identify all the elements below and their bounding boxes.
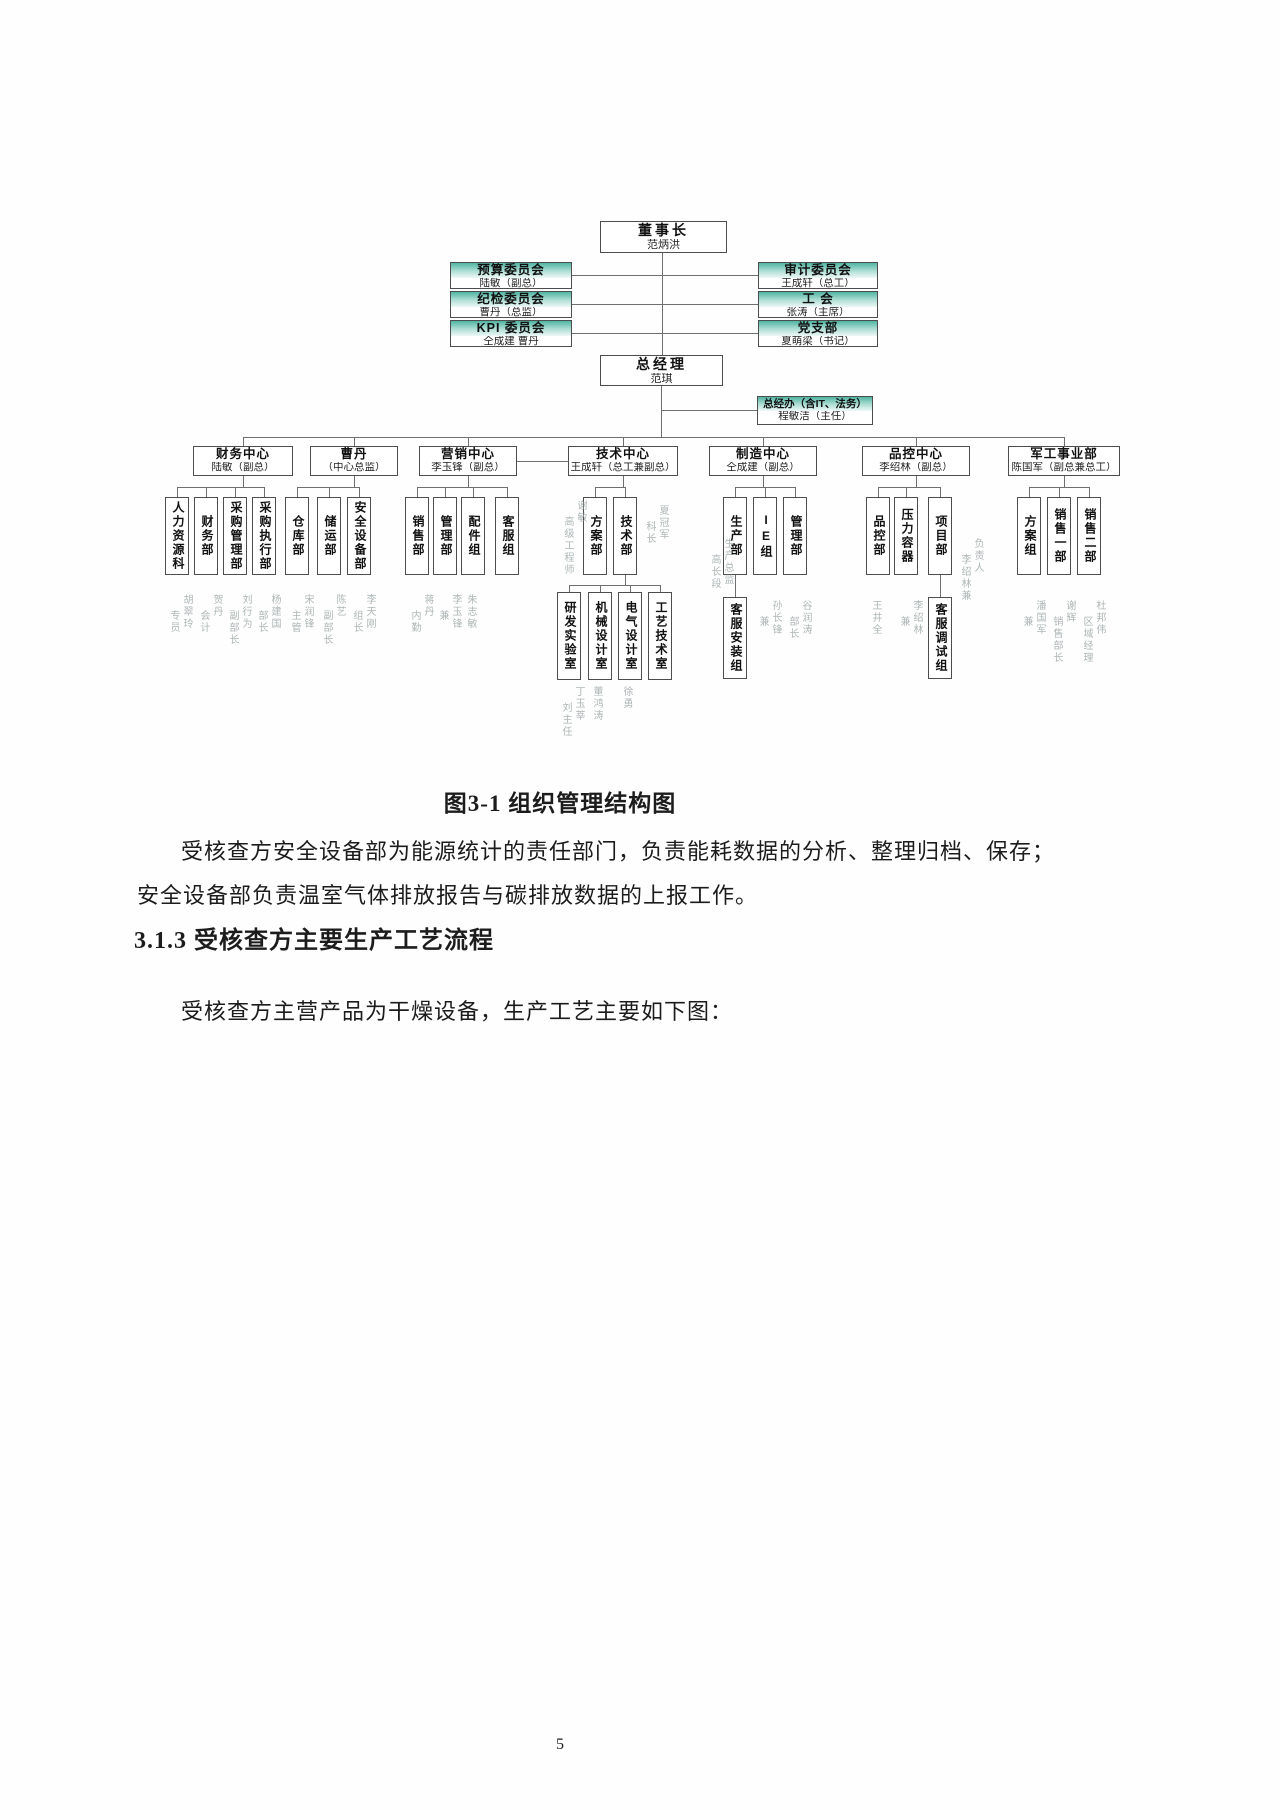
box-title: 审计委员会 — [759, 263, 877, 278]
org-dept-safety-equipment: 安全设备部 — [347, 497, 371, 575]
note-text: 李绍林 — [910, 600, 923, 636]
connector-line — [572, 275, 663, 276]
note-text: 杜邦伟 — [1093, 600, 1106, 664]
connector-line — [243, 476, 244, 487]
org-dept-sales: 销售部 — [405, 497, 429, 575]
connector-line — [473, 487, 474, 497]
org-box-marketing-center: 营销中心 李玉锋（副总） — [419, 446, 517, 476]
connector-line — [763, 476, 764, 487]
scanned-document-page: 董事长 范炳洪 总经理 范琪 总经办（含IT、法务） 程敏洁（主任） 预算委员会… — [0, 0, 1280, 1810]
handwritten-note: 李天刚组长 — [350, 594, 376, 634]
connector-line — [569, 585, 660, 586]
connector-line — [735, 575, 736, 597]
handwritten-note: 宋润锋主管 — [288, 594, 314, 634]
org-dept-parts-group: 配件组 — [461, 497, 485, 575]
connector-line — [878, 487, 879, 497]
connector-line — [1064, 437, 1065, 446]
note-text: 主管 — [288, 610, 301, 634]
note-text: 贺丹 — [210, 594, 223, 634]
connector-line — [206, 487, 207, 497]
box-title: 曹丹 — [311, 447, 397, 462]
connector-line — [569, 585, 570, 592]
org-box-discipline-committee: 纪检委员会 曹丹（总监） — [450, 291, 572, 318]
connector-line — [940, 487, 941, 497]
note-text: 李玉锋 — [449, 594, 462, 630]
note-text: 谢敏 — [574, 500, 587, 576]
box-title: KPI 委员会 — [451, 321, 571, 336]
connector-line — [765, 487, 766, 497]
note-text: 董鸿涛 — [590, 686, 603, 722]
note-text: 潘国军 — [1033, 600, 1046, 636]
connector-line — [940, 575, 941, 597]
connector-line — [1029, 487, 1030, 497]
note-text: 兼 — [436, 610, 449, 630]
connector-line — [630, 585, 631, 592]
org-dept-warehouse: 仓库部 — [285, 497, 309, 575]
note-text: 胡翠玲 — [180, 594, 193, 634]
note-text: 内勤 — [408, 610, 421, 634]
note-text: 销售部长 — [1050, 616, 1063, 664]
connector-line — [329, 487, 330, 497]
note-text: 生产总监 — [721, 538, 734, 590]
note-text: 刘主任 — [559, 702, 572, 738]
note-text: 夏冠军 — [656, 505, 669, 545]
note-text: 兼 — [1020, 616, 1033, 636]
org-box-technology-center: 技术中心 王成轩（总工兼副总） — [568, 446, 678, 476]
handwritten-note: 杜邦伟区域经理 — [1080, 600, 1106, 664]
page-number: 5 — [137, 1736, 983, 1754]
note-text: 李绍林兼 — [958, 554, 971, 602]
box-name: 仝成建 曹丹 — [451, 336, 571, 347]
box-name: 李绍林（副总） — [863, 462, 969, 473]
connector-line — [623, 476, 624, 487]
connector-line — [1059, 487, 1060, 497]
box-title: 财务中心 — [194, 447, 292, 462]
org-dept-storage-transport: 储运部 — [317, 497, 341, 575]
paragraph-line: 安全设备部负责温室气体排放报告与碳排放数据的上报工作。 — [137, 878, 758, 910]
connector-line — [468, 476, 469, 487]
org-box-kpi-committee: KPI 委员会 仝成建 曹丹 — [450, 320, 572, 347]
org-dept-hr: 人力资源科 — [165, 497, 189, 575]
note-text: 谢辉 — [1063, 600, 1076, 664]
box-title: 纪检委员会 — [451, 292, 571, 307]
connector-line — [572, 333, 663, 334]
connector-line — [297, 487, 298, 497]
connector-line — [417, 487, 418, 497]
note-text: 部长 — [786, 616, 799, 640]
box-title: 军工事业部 — [1009, 447, 1119, 462]
box-title: 工 会 — [759, 292, 877, 307]
box-name: 陈国军（副总兼总工） — [1009, 462, 1119, 473]
box-name: 李玉锋（副总） — [420, 462, 516, 473]
connector-line — [763, 437, 764, 446]
box-title: 营销中心 — [420, 447, 516, 462]
paragraph-line: 受核查方主营产品为干燥设备，生产工艺主要如下图： — [181, 994, 733, 1026]
connector-line — [507, 487, 508, 497]
box-name: 夏萌梁（书记） — [759, 336, 877, 347]
connector-line — [916, 437, 917, 446]
section-heading: 3.1.3 受核查方主要生产工艺流程 — [134, 920, 494, 955]
handwritten-note: 蒋丹内勤 — [408, 594, 434, 634]
connector-line — [572, 304, 663, 305]
org-box-finance-center: 财务中心 陆敏（副总） — [193, 446, 293, 476]
connector-line — [663, 275, 758, 276]
connector-line — [1089, 487, 1090, 497]
handwritten-note: 孙长锋兼 — [756, 600, 782, 636]
handwritten-note: 谢辉销售部长 — [1050, 600, 1076, 664]
org-box-manufacturing-center: 制造中心 仝成建（副总） — [709, 446, 817, 476]
org-box-labor-union: 工 会 张涛（主席） — [758, 291, 878, 318]
org-sub-rd-lab: 研发实验室 — [557, 592, 581, 680]
connector-line — [445, 487, 446, 497]
connector-line — [1064, 476, 1065, 487]
handwritten-note: 董鸿涛 — [590, 686, 603, 722]
handwritten-note: 朱志敏 — [464, 594, 477, 630]
box-name: 陆敏（副总） — [451, 278, 571, 289]
note-text: 宋润锋 — [301, 594, 314, 634]
connector-line — [623, 437, 624, 446]
connector-line — [735, 487, 736, 497]
note-text: 丁玉莘 — [572, 686, 585, 738]
note-text: 高级工程师 — [561, 516, 574, 576]
handwritten-note: 杨建国部长 — [255, 594, 281, 634]
handwritten-note: 王井全 — [869, 600, 882, 636]
connector-line — [517, 461, 568, 462]
connector-line — [243, 437, 244, 446]
box-name: 程敏洁（主任） — [758, 411, 872, 422]
box-name: 王成轩（总工） — [759, 278, 877, 289]
box-name: 王成轩（总工兼副总） — [569, 462, 677, 473]
note-text: 会计 — [197, 610, 210, 634]
org-dept-solution-group: 方案组 — [1017, 497, 1041, 575]
note-text: 组长 — [350, 610, 363, 634]
box-name: 范琪 — [601, 373, 722, 385]
connector-line — [417, 487, 507, 488]
connector-line — [359, 487, 360, 497]
org-dept-sales-2: 销售二部 — [1077, 497, 1101, 575]
org-dept-quality: 品控部 — [866, 497, 890, 575]
connector-line — [235, 487, 236, 497]
note-text: 部长 — [255, 610, 268, 634]
box-title: 技术中心 — [569, 447, 677, 462]
box-name: 陆敏（副总） — [194, 462, 292, 473]
handwritten-note: 夏冠军科长 — [643, 505, 669, 545]
note-text: 王井全 — [869, 600, 882, 636]
handwritten-note: 陈艺副部长 — [320, 594, 346, 646]
box-title: 董事长 — [601, 222, 726, 239]
org-sub-service-install: 客服安装组 — [723, 597, 747, 679]
handwritten-note: 潘国军兼 — [1020, 600, 1046, 636]
box-title: 制造中心 — [710, 447, 816, 462]
connector-line — [354, 437, 355, 446]
note-text: 杨建国 — [268, 594, 281, 634]
note-text: 科长 — [643, 521, 656, 545]
box-title: 预算委员会 — [451, 263, 571, 278]
org-sub-mech-design: 机械设计室 — [588, 592, 612, 680]
note-text: 高长段 — [708, 554, 721, 590]
connector-line — [661, 410, 757, 411]
connector-line — [600, 585, 601, 592]
org-dept-technical: 技术部 — [613, 497, 637, 575]
note-text: 副部长 — [226, 610, 239, 646]
box-title: 品控中心 — [863, 447, 969, 462]
handwritten-note: 负责人李绍林兼 — [958, 538, 984, 602]
connector-line — [663, 304, 758, 305]
paragraph-line: 受核查方安全设备部为能源统计的责任部门，负责能耗数据的分析、整理归档、保存； — [181, 834, 1055, 866]
handwritten-note: 谷润涛部长 — [786, 600, 812, 640]
org-dept-mkt-admin: 管理部 — [433, 497, 457, 575]
box-name: 张涛（主席） — [759, 307, 877, 318]
connector-line — [660, 585, 661, 592]
note-text: 副部长 — [320, 610, 333, 646]
note-text: 徐勇 — [620, 686, 633, 710]
handwritten-note: 丁玉莘刘主任 — [559, 686, 585, 738]
org-dept-sales-1: 销售一部 — [1047, 497, 1071, 575]
org-dept-purchasing-exec: 采购执行部 — [252, 497, 276, 575]
handwritten-note: 李玉锋兼 — [436, 594, 462, 630]
handwritten-note: 徐勇 — [620, 686, 633, 710]
org-dept-mfg-admin: 管理部 — [783, 497, 807, 575]
note-text: 刘行为 — [239, 594, 252, 646]
note-text: 蒋丹 — [421, 594, 434, 634]
connector-line — [243, 437, 1064, 438]
connector-line — [795, 487, 796, 497]
org-box-general-manager: 总经理 范琪 — [600, 355, 723, 386]
note-text: 朱志敏 — [464, 594, 477, 630]
org-dept-ie-group: IE组 — [753, 497, 777, 575]
org-dept-pressure-vessel: 压力容器 — [894, 497, 918, 575]
connector-line — [663, 333, 758, 334]
note-text: 孙长锋 — [769, 600, 782, 636]
org-dept-project: 项目部 — [928, 497, 952, 575]
org-dept-service-group: 客服组 — [495, 497, 519, 575]
handwritten-note: 李绍林兼 — [897, 600, 923, 636]
handwritten-note: 谢敏高级工程师 — [561, 500, 587, 576]
note-text: 专员 — [167, 610, 180, 634]
org-sub-elec-design: 电气设计室 — [618, 592, 642, 680]
connector-line — [878, 487, 940, 488]
note-text: 谷润涛 — [799, 600, 812, 640]
org-box-caodan-director: 曹丹 （中心总监） — [310, 446, 398, 476]
note-text: 兼 — [897, 616, 910, 636]
box-name: 范炳洪 — [601, 239, 726, 251]
org-box-budget-committee: 预算委员会 陆敏（副总） — [450, 262, 572, 289]
handwritten-note: 生产总监高长段 — [708, 538, 734, 590]
connector-line — [661, 386, 662, 437]
connector-line — [595, 487, 626, 488]
box-name: 曹丹（总监） — [451, 307, 571, 318]
figure-caption: 图3-1 组织管理结构图 — [137, 784, 983, 818]
connector-line — [906, 487, 907, 497]
connector-line — [625, 575, 626, 585]
note-text: 兼 — [756, 616, 769, 636]
box-name: 仝成建（副总） — [710, 462, 816, 473]
connector-line — [354, 476, 355, 487]
handwritten-note: 刘行为副部长 — [226, 594, 252, 646]
org-sub-process-tech: 工艺技术室 — [648, 592, 672, 680]
connector-line — [177, 487, 178, 497]
note-text: 负责人 — [971, 538, 984, 602]
org-dept-purchasing-mgmt: 采购管理部 — [223, 497, 247, 575]
org-box-quality-center: 品控中心 李绍林（副总） — [862, 446, 970, 476]
handwritten-note: 胡翠玲专员 — [167, 594, 193, 634]
connector-line — [264, 487, 265, 497]
note-text: 李天刚 — [363, 594, 376, 634]
org-box-chairman: 董事长 范炳洪 — [600, 221, 727, 253]
note-text: 区域经理 — [1080, 616, 1093, 664]
org-sub-service-debug: 客服调试组 — [928, 597, 952, 679]
connector-line — [297, 487, 359, 488]
org-box-gm-office: 总经办（含IT、法务） 程敏洁（主任） — [757, 396, 873, 425]
org-dept-finance: 财务部 — [194, 497, 218, 575]
connector-line — [595, 487, 596, 497]
connector-line — [916, 476, 917, 487]
handwritten-note: 贺丹会计 — [197, 594, 223, 634]
box-name: （中心总监） — [311, 462, 397, 473]
box-title: 总经办（含IT、法务） — [758, 397, 872, 411]
org-box-military-division: 军工事业部 陈国军（副总兼总工） — [1008, 446, 1120, 476]
box-title: 党支部 — [759, 321, 877, 336]
box-title: 总经理 — [601, 356, 722, 373]
connector-line — [468, 437, 469, 446]
org-box-party-branch: 党支部 夏萌梁（书记） — [758, 320, 878, 347]
note-text: 陈艺 — [333, 594, 346, 646]
connector-line — [177, 487, 265, 488]
connector-line — [625, 487, 626, 497]
org-box-audit-committee: 审计委员会 王成轩（总工） — [758, 262, 878, 289]
